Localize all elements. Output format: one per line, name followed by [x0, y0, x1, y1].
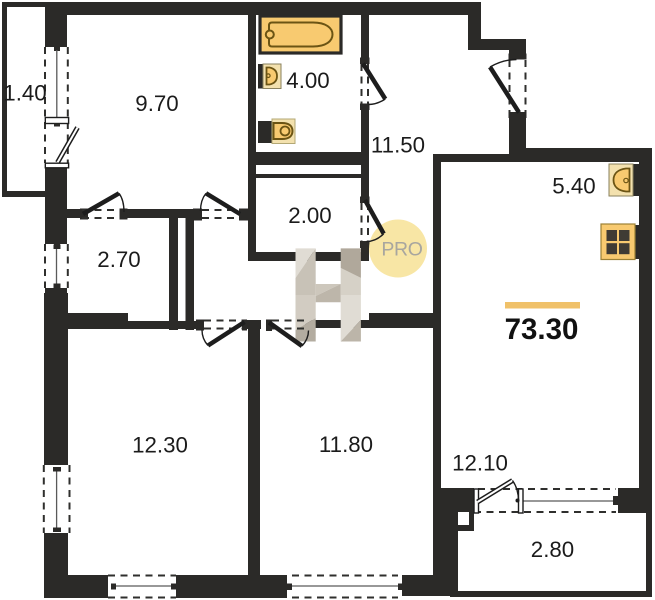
svg-text:PRO: PRO	[381, 239, 422, 261]
svg-text:9.70: 9.70	[135, 91, 178, 116]
svg-text:1.40: 1.40	[3, 81, 46, 106]
svg-text:12.10: 12.10	[452, 451, 508, 476]
svg-text:2.70: 2.70	[97, 247, 140, 272]
svg-text:73.30: 73.30	[505, 313, 579, 346]
svg-text:4.00: 4.00	[286, 68, 329, 93]
svg-text:11.80: 11.80	[319, 432, 373, 457]
svg-text:2.80: 2.80	[531, 537, 574, 562]
svg-text:11.50: 11.50	[371, 133, 425, 158]
svg-text:2.00: 2.00	[288, 203, 331, 228]
svg-text:12.30: 12.30	[132, 433, 188, 458]
svg-text:5.40: 5.40	[552, 174, 595, 199]
